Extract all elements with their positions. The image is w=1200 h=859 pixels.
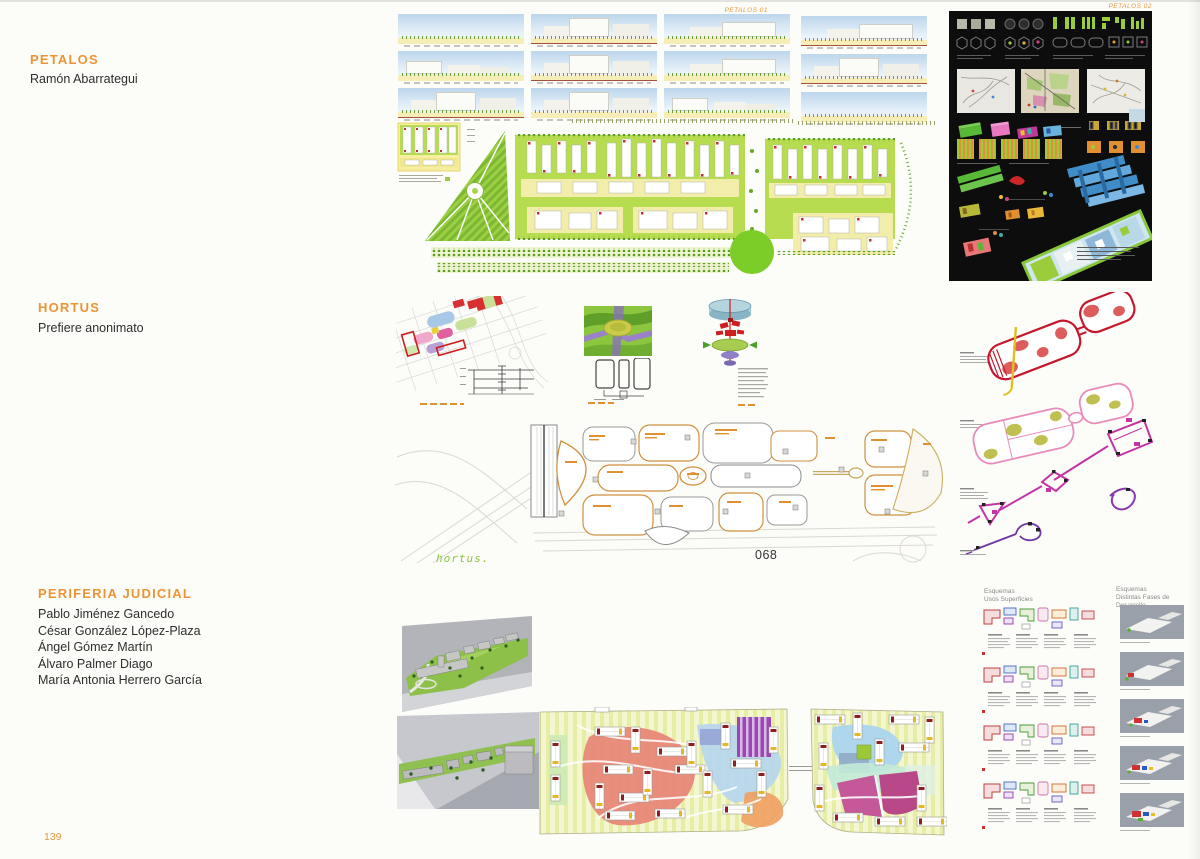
elevation-thumbnail	[664, 88, 790, 121]
hortus-plan-caption: hortus.	[436, 552, 489, 565]
siteplan-parcel-1	[515, 134, 745, 240]
periferia-plan-1	[537, 707, 791, 839]
hortus-tower-diagram	[701, 297, 759, 371]
sketch-section-diagram	[460, 366, 534, 394]
elevation-thumbnail	[801, 16, 927, 49]
hortus-caption-3	[738, 404, 758, 406]
hortus-diagram-pink	[968, 381, 1139, 467]
elevation-thumbnail	[801, 54, 927, 87]
siteplan-road-gap	[749, 149, 759, 231]
petalos-author: Ramón Abarrategui	[30, 71, 138, 88]
elevation-thumbnail	[664, 14, 790, 47]
hortus-diagram-column	[958, 292, 1158, 562]
elevation-thumbnail	[531, 14, 657, 47]
sketch-street-grid	[396, 296, 548, 396]
periferia-aerial-2	[397, 712, 539, 809]
elevation-thumbnail	[664, 51, 790, 84]
hortus-green-render	[584, 306, 652, 356]
petalos-board-label-1: PETALOS 01	[690, 7, 768, 14]
hortus-diagram-purple	[966, 522, 1041, 554]
periferia-author-3: Ángel Gómez Martín	[38, 639, 202, 656]
elevation-thumbnail	[398, 51, 524, 84]
periferia-phase-panels	[1112, 600, 1192, 840]
hortus-caption-2	[588, 402, 614, 404]
petalos-black-board	[949, 11, 1152, 281]
scheme-b-line1: Esquemas	[1116, 586, 1200, 594]
petalos-site-plan	[397, 121, 945, 287]
periferia-authors: Pablo Jiménez Gancedo César González Lóp…	[38, 606, 202, 689]
figure-number: 068	[755, 548, 777, 562]
hortus-mini-plan	[592, 358, 654, 402]
petalos-elevation-grid	[398, 14, 790, 121]
hortus-caption-1	[420, 403, 464, 405]
hortus-caption-microtext	[738, 368, 772, 400]
sketch-blobs	[396, 296, 518, 364]
hortus-main-plan	[393, 413, 949, 563]
elevation-thumbnail	[398, 88, 524, 121]
scheme-a-line1: Esquemas	[984, 588, 1033, 596]
periferia-author-4: Álvaro Palmer Diago	[38, 656, 202, 673]
plan-parcels	[531, 423, 942, 545]
elevation-thumbnail	[531, 88, 657, 121]
hortus-blob-sketch	[396, 296, 548, 408]
periferia-author-5: María Antonia Herrero García	[38, 672, 202, 689]
elevation-thumbnail	[398, 14, 524, 47]
book-page: PETALOS Ramón Abarrategui HORTUS Prefier…	[0, 0, 1200, 859]
hortus-diagram-red	[980, 292, 1147, 396]
hortus-title: HORTUS	[38, 300, 100, 315]
periferia-author-1: Pablo Jiménez Gancedo	[38, 606, 202, 623]
page-number: 139	[44, 831, 62, 843]
siteplan-green-circle	[730, 230, 774, 274]
siteplan-parcel-2	[765, 138, 911, 255]
elevation-thumbnail	[531, 51, 657, 84]
periferia-aerial-1	[402, 616, 532, 712]
periferia-author-2: César González López-Plaza	[38, 623, 202, 640]
hortus-author: Prefiere anonimato	[38, 320, 144, 337]
petalos-title: PETALOS	[30, 52, 99, 67]
periferia-scheme-plans	[982, 602, 1104, 830]
periferia-title: PERIFERIA JUDICIAL	[38, 586, 192, 601]
board-maps	[957, 69, 1145, 113]
petalos-board-label-2: PETALOS 02	[1080, 3, 1152, 10]
petalos-elevation-column	[801, 16, 927, 125]
periferia-plan-2	[805, 705, 947, 839]
siteplan-detail-inset	[398, 123, 475, 182]
